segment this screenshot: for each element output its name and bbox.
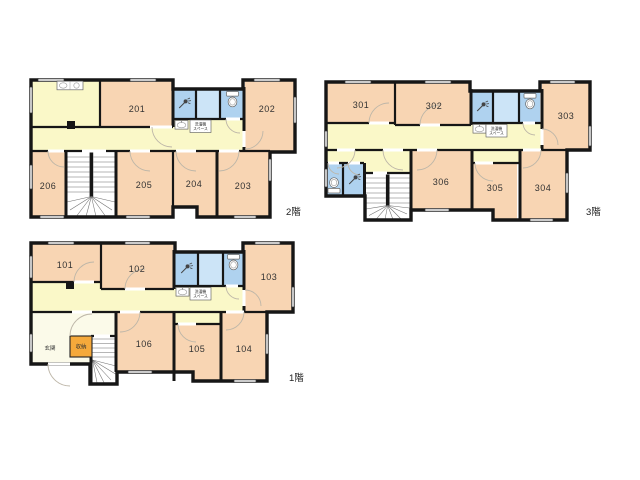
- shower-room-3f: [471, 91, 493, 123]
- room-204-label: 204: [186, 179, 203, 189]
- floor-plan-2f: 洗濯機 スペース 201 202 203 204 205 206: [30, 79, 298, 225]
- washbasin-icon: [473, 125, 486, 134]
- room-202-label: 202: [259, 104, 276, 114]
- room-202-area: [245, 80, 295, 152]
- washroom-3f: [493, 91, 519, 123]
- floor-label-1f: 1階: [289, 370, 304, 384]
- room-201-label: 201: [129, 104, 146, 114]
- storage-label: 収納: [75, 343, 87, 351]
- laundry-space-label-line1: 洗濯機: [195, 121, 207, 126]
- laundry-space-label-line2: スペース: [193, 294, 208, 299]
- room-101-label: 101: [57, 260, 74, 270]
- room-103-label: 103: [261, 272, 278, 282]
- room-205-label: 205: [136, 180, 153, 190]
- room-104-label: 104: [236, 344, 253, 354]
- room-105-label: 105: [189, 344, 206, 354]
- floor-2f-areas: [31, 80, 295, 217]
- kitchen-counter-icon: [57, 81, 83, 90]
- room-106-label: 106: [136, 339, 153, 349]
- laundry-space-label-line1: 洗濯機: [195, 289, 207, 294]
- laundry-space-label-line2: スペース: [193, 126, 208, 131]
- room-303-label: 303: [558, 111, 575, 121]
- floor-label-2f: 2階: [286, 204, 301, 218]
- room-305-label: 305: [487, 183, 504, 193]
- staircase-2f: [67, 153, 115, 217]
- floor-plan-1f: 洗濯機 スペース 101 102 103 104 105 106 玄関 収納: [30, 242, 298, 392]
- washbasin-icon: [175, 121, 188, 130]
- washroom-1f: [198, 252, 223, 286]
- entrance-label: 玄関: [44, 344, 56, 352]
- room-304-label: 304: [535, 183, 552, 193]
- room-206-label: 206: [40, 181, 57, 191]
- shower-room-2f: [173, 89, 196, 119]
- washbasin-icon: [176, 288, 189, 297]
- room-301-label: 301: [353, 100, 370, 110]
- room-102-label: 102: [129, 264, 146, 274]
- floor-plan-canvas: 洗濯機 スペース 201 202 203 204 205 206: [0, 0, 640, 480]
- room-306-label: 306: [433, 177, 450, 187]
- pillar-1f: [66, 282, 74, 289]
- pillar-2f: [67, 121, 75, 129]
- laundry-space-label-line1: 洗濯機: [491, 126, 503, 131]
- laundry-space-label-line2: スペース: [489, 131, 504, 136]
- shower-room-1f: [174, 252, 198, 286]
- floor-plan-3f: 洗濯機 スペース 301 302 303 304 305 306: [325, 81, 593, 227]
- staircase-3f: [366, 175, 410, 220]
- staircase-1f: [93, 339, 117, 383]
- room-203-label: 203: [235, 181, 252, 191]
- room-302-label: 302: [426, 101, 443, 111]
- washroom-2f: [196, 89, 220, 119]
- floor-label-3f: 3階: [586, 204, 601, 218]
